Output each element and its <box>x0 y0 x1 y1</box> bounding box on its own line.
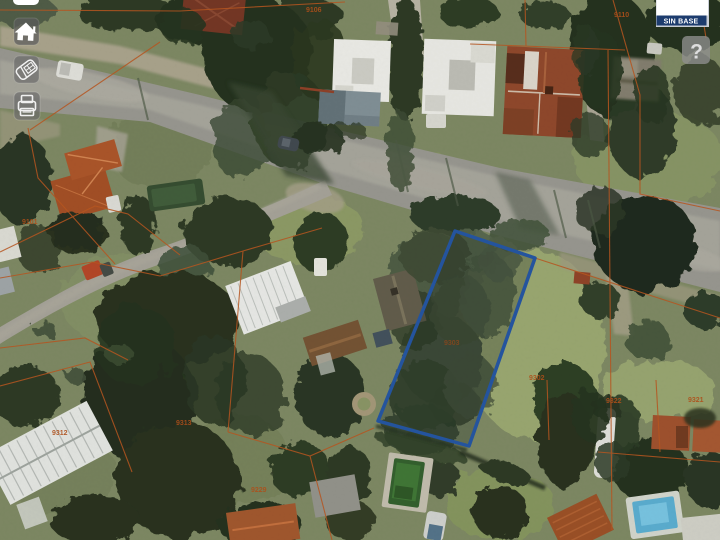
svg-text:?: ? <box>690 41 703 64</box>
svg-text:SIN BASE: SIN BASE <box>664 18 699 25</box>
